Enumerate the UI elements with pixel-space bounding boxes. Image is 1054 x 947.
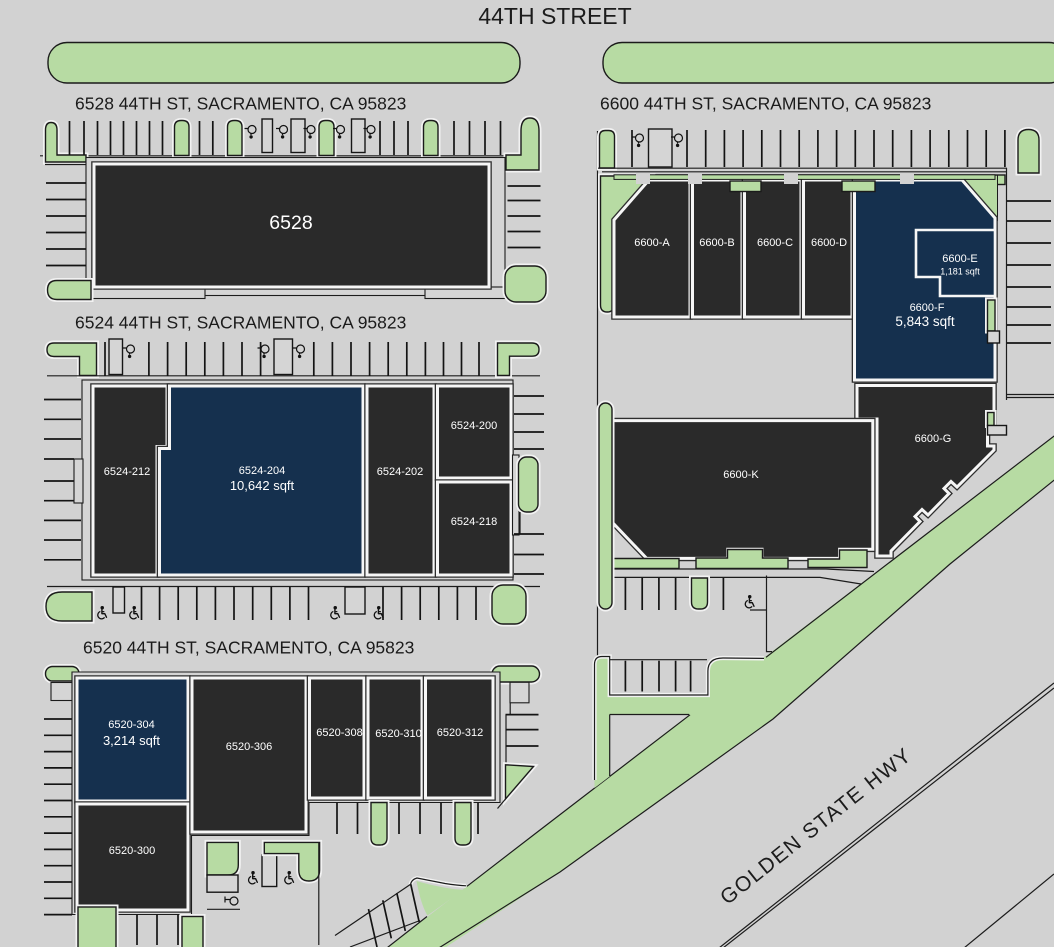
- svg-text:6524-200: 6524-200: [451, 420, 498, 432]
- svg-text:6600-K: 6600-K: [723, 469, 759, 481]
- svg-text:6524-218: 6524-218: [451, 516, 498, 528]
- svg-text:6520-306: 6520-306: [226, 741, 273, 753]
- svg-text:6524 44TH ST, SACRAMENTO, CA 9: 6524 44TH ST, SACRAMENTO, CA 95823: [75, 313, 406, 333]
- svg-text:6600-G: 6600-G: [915, 433, 952, 445]
- svg-text:6524-202: 6524-202: [377, 466, 424, 478]
- svg-text:6520-312: 6520-312: [437, 727, 484, 739]
- svg-text:1,181 sqft: 1,181 sqft: [940, 267, 980, 277]
- svg-text:44TH STREET: 44TH STREET: [478, 3, 631, 29]
- svg-text:6528 44TH ST, SACRAMENTO, CA 9: 6528 44TH ST, SACRAMENTO, CA 95823: [75, 94, 406, 114]
- svg-text:6600-B: 6600-B: [699, 237, 734, 249]
- svg-text:3,214 sqft: 3,214 sqft: [103, 733, 160, 748]
- svg-text:6600-E: 6600-E: [942, 253, 977, 265]
- svg-text:6520-308: 6520-308: [316, 727, 363, 739]
- svg-text:6600-D: 6600-D: [811, 237, 847, 249]
- svg-text:6600-A: 6600-A: [634, 237, 670, 249]
- svg-text:6528: 6528: [269, 212, 312, 234]
- svg-text:6600-C: 6600-C: [757, 237, 793, 249]
- svg-text:6600-F: 6600-F: [910, 302, 945, 314]
- svg-text:6520-310: 6520-310: [375, 728, 422, 740]
- svg-text:5,843 sqft: 5,843 sqft: [895, 314, 955, 329]
- svg-text:6520 44TH ST, SACRAMENTO, CA 9: 6520 44TH ST, SACRAMENTO, CA 95823: [83, 638, 414, 658]
- svg-text:6520-304: 6520-304: [108, 719, 155, 731]
- svg-text:6524-204: 6524-204: [239, 465, 286, 477]
- svg-text:6524-212: 6524-212: [104, 466, 151, 478]
- svg-text:6600 44TH ST, SACRAMENTO, CA 9: 6600 44TH ST, SACRAMENTO, CA 95823: [600, 94, 931, 114]
- svg-text:10,642 sqft: 10,642 sqft: [230, 478, 295, 493]
- svg-text:6520-300: 6520-300: [109, 845, 156, 857]
